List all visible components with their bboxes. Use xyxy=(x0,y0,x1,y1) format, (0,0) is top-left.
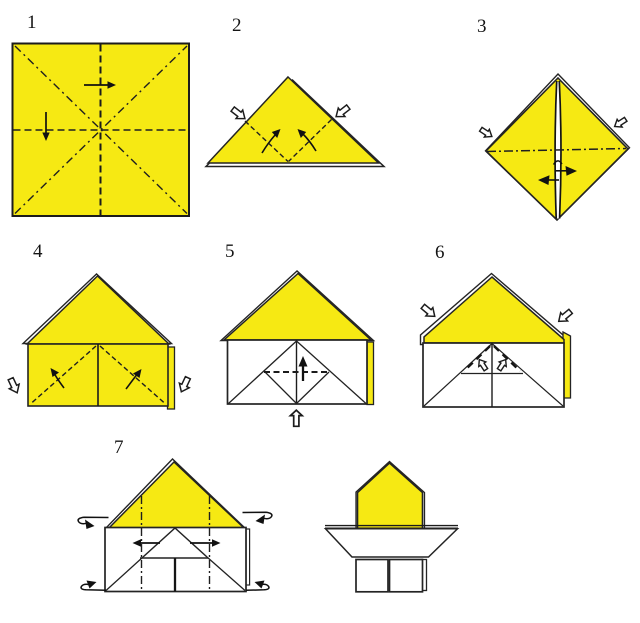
svg-text:1: 1 xyxy=(27,12,37,33)
svg-text:6: 6 xyxy=(435,242,445,263)
svg-text:3: 3 xyxy=(477,16,487,37)
svg-text:5: 5 xyxy=(225,241,235,262)
svg-text:4: 4 xyxy=(33,241,43,262)
svg-text:2: 2 xyxy=(232,15,242,36)
svg-text:7: 7 xyxy=(114,437,124,458)
